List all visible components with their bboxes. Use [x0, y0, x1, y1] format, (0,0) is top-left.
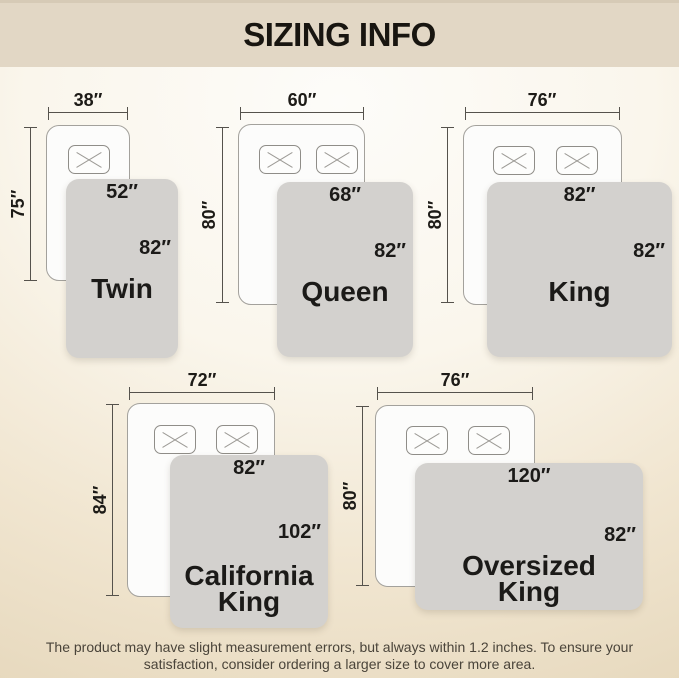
blanket-length-label: 82″: [374, 240, 406, 263]
pillow-icon: [68, 145, 110, 174]
width-dimension-line: [465, 112, 620, 113]
mattress-width-label: 76″: [492, 90, 592, 110]
footer-note: The product may have slight measurement …: [0, 639, 679, 673]
size-name-label: California King: [174, 563, 324, 615]
size-name-label: Oversized King: [454, 553, 604, 605]
height-dimension-line: [222, 127, 223, 303]
width-dimension-line: [377, 392, 533, 393]
sizing-infographic: SIZING INFO 38″ 75″ 52″ 82″ Twin 60″ 80″…: [0, 0, 679, 678]
pillow-icon: [259, 145, 301, 174]
height-dimension-line: [362, 406, 363, 586]
size-name-label: Twin: [66, 276, 178, 302]
pillow-icon: [468, 426, 510, 455]
pillow-icon: [556, 146, 598, 175]
height-dimension-line: [447, 127, 448, 303]
height-dimension-line: [112, 404, 113, 596]
blanket: 82″ 102″ California King: [170, 455, 328, 628]
blanket-length-label: 82″: [139, 237, 171, 260]
mattress-width-label: 38″: [38, 90, 138, 110]
pillow-icon: [406, 426, 448, 455]
blanket-width-label: 82″: [487, 184, 672, 207]
width-dimension-line: [48, 112, 128, 113]
footer-note-line2: satisfaction, consider ordering a larger…: [0, 656, 679, 673]
pillow-icon: [154, 425, 196, 454]
mattress-height-label: 80″: [199, 185, 219, 245]
pillow-icon: [493, 146, 535, 175]
mattress-width-label: 76″: [405, 370, 505, 390]
blanket: 68″ 82″ Queen: [277, 182, 413, 357]
blanket-length-label: 102″: [278, 521, 321, 544]
blanket-width-label: 68″: [277, 184, 413, 207]
blanket-width-label: 82″: [170, 457, 328, 480]
blanket: 52″ 82″ Twin: [66, 179, 178, 358]
blanket-width-label: 120″: [415, 465, 643, 488]
pillow-icon: [316, 145, 358, 174]
header-bar: SIZING INFO: [0, 0, 679, 67]
footer-note-line1: The product may have slight measurement …: [0, 639, 679, 656]
size-name-label: King: [487, 279, 672, 305]
height-dimension-line: [30, 127, 31, 281]
mattress-width-label: 60″: [252, 90, 352, 110]
size-name-label: Queen: [277, 279, 413, 305]
pillow-icon: [216, 425, 258, 454]
blanket: 82″ 82″ King: [487, 182, 672, 357]
mattress-height-label: 80″: [340, 466, 360, 526]
width-dimension-line: [240, 112, 364, 113]
blanket-length-label: 82″: [633, 240, 665, 263]
mattress-height-label: 84″: [90, 470, 110, 530]
mattress-height-label: 80″: [425, 185, 445, 245]
blanket-width-label: 52″: [66, 181, 178, 204]
blanket-length-label: 82″: [604, 524, 636, 547]
blanket: 120″ 82″ Oversized King: [415, 463, 643, 610]
mattress-height-label: 75″: [8, 174, 28, 234]
width-dimension-line: [129, 392, 275, 393]
mattress-width-label: 72″: [152, 370, 252, 390]
page-title: SIZING INFO: [243, 16, 436, 54]
